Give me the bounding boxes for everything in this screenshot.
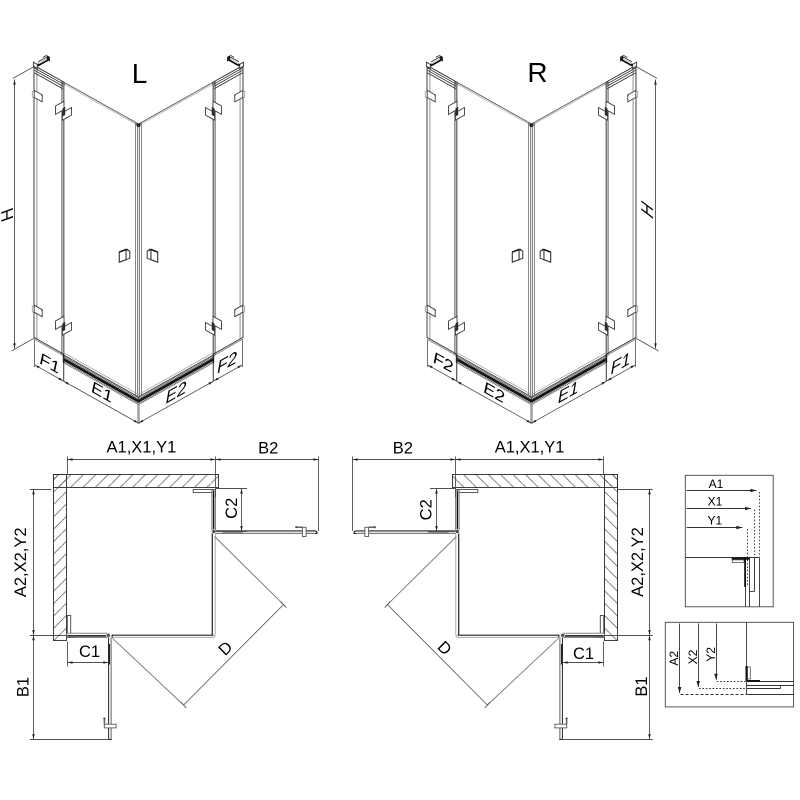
svg-text:A2: A2 bbox=[667, 651, 681, 666]
svg-text:X1: X1 bbox=[708, 494, 723, 508]
svg-text:C1: C1 bbox=[79, 643, 100, 661]
svg-text:R: R bbox=[527, 57, 547, 88]
svg-text:A2,X2,Y2: A2,X2,Y2 bbox=[629, 527, 647, 597]
svg-text:A1: A1 bbox=[709, 477, 724, 491]
svg-text:B1: B1 bbox=[633, 676, 651, 696]
svg-text:B1: B1 bbox=[15, 677, 33, 697]
svg-text:B2: B2 bbox=[258, 439, 278, 457]
svg-text:A1,X1,Y1: A1,X1,Y1 bbox=[107, 438, 177, 456]
svg-text:L: L bbox=[132, 58, 148, 89]
svg-text:X2: X2 bbox=[686, 649, 700, 664]
svg-text:A2,X2,Y2: A2,X2,Y2 bbox=[12, 527, 30, 597]
svg-text:A1,X1,Y1: A1,X1,Y1 bbox=[495, 438, 565, 456]
svg-text:C1: C1 bbox=[573, 645, 594, 663]
svg-text:Y2: Y2 bbox=[704, 647, 718, 662]
svg-text:Y1: Y1 bbox=[707, 514, 722, 528]
svg-text:C2: C2 bbox=[417, 499, 435, 520]
svg-text:C2: C2 bbox=[223, 498, 241, 519]
svg-text:B2: B2 bbox=[393, 439, 413, 457]
